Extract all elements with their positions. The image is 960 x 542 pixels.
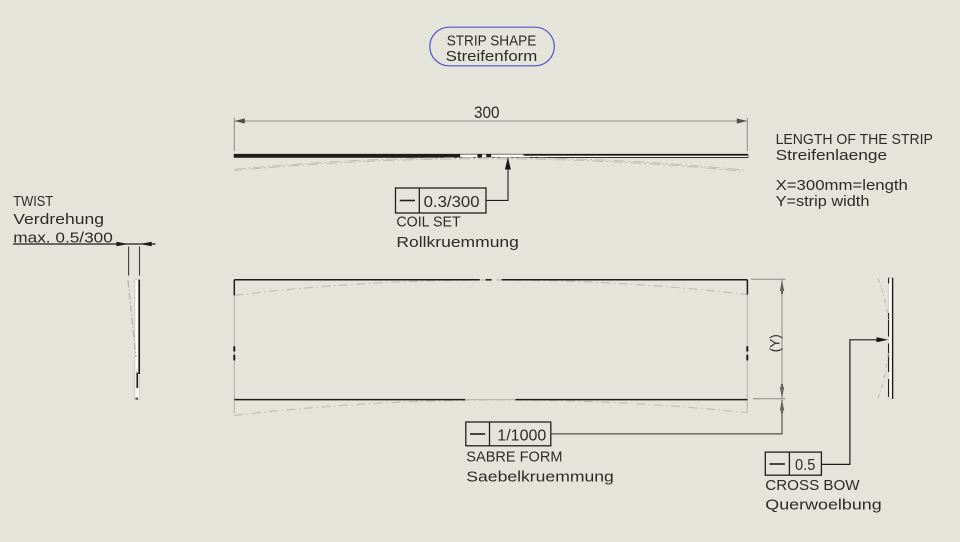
svg-text:Streifenlaenge: Streifenlaenge [776,147,888,164]
svg-text:LENGTH OF THE STRIP: LENGTH OF THE STRIP [776,131,933,148]
svg-text:Verdrehung: Verdrehung [13,211,104,228]
svg-text:COIL SET: COIL SET [396,214,460,231]
svg-text:Saebelkruemmung: Saebelkruemmung [466,468,614,485]
svg-text:TWIST: TWIST [13,193,53,210]
svg-text:CROSS BOW: CROSS BOW [765,477,860,494]
svg-text:300: 300 [474,104,500,122]
svg-text:Querwoelbung: Querwoelbung [765,496,881,513]
svg-text:0.3/300: 0.3/300 [424,194,480,211]
svg-text:Streifenform: Streifenform [446,48,538,65]
svg-text:STRIP SHAPE: STRIP SHAPE [447,33,537,50]
svg-text:X=300mm=length: X=300mm=length [776,177,908,194]
svg-text:Y=strip width: Y=strip width [776,193,870,210]
svg-text:1/1000: 1/1000 [497,427,546,444]
svg-text:0.5: 0.5 [795,457,815,474]
svg-text:SABRE FORM: SABRE FORM [466,448,562,465]
svg-text:(Y): (Y) [767,334,782,352]
svg-text:Rollkruemmung: Rollkruemmung [396,234,519,251]
